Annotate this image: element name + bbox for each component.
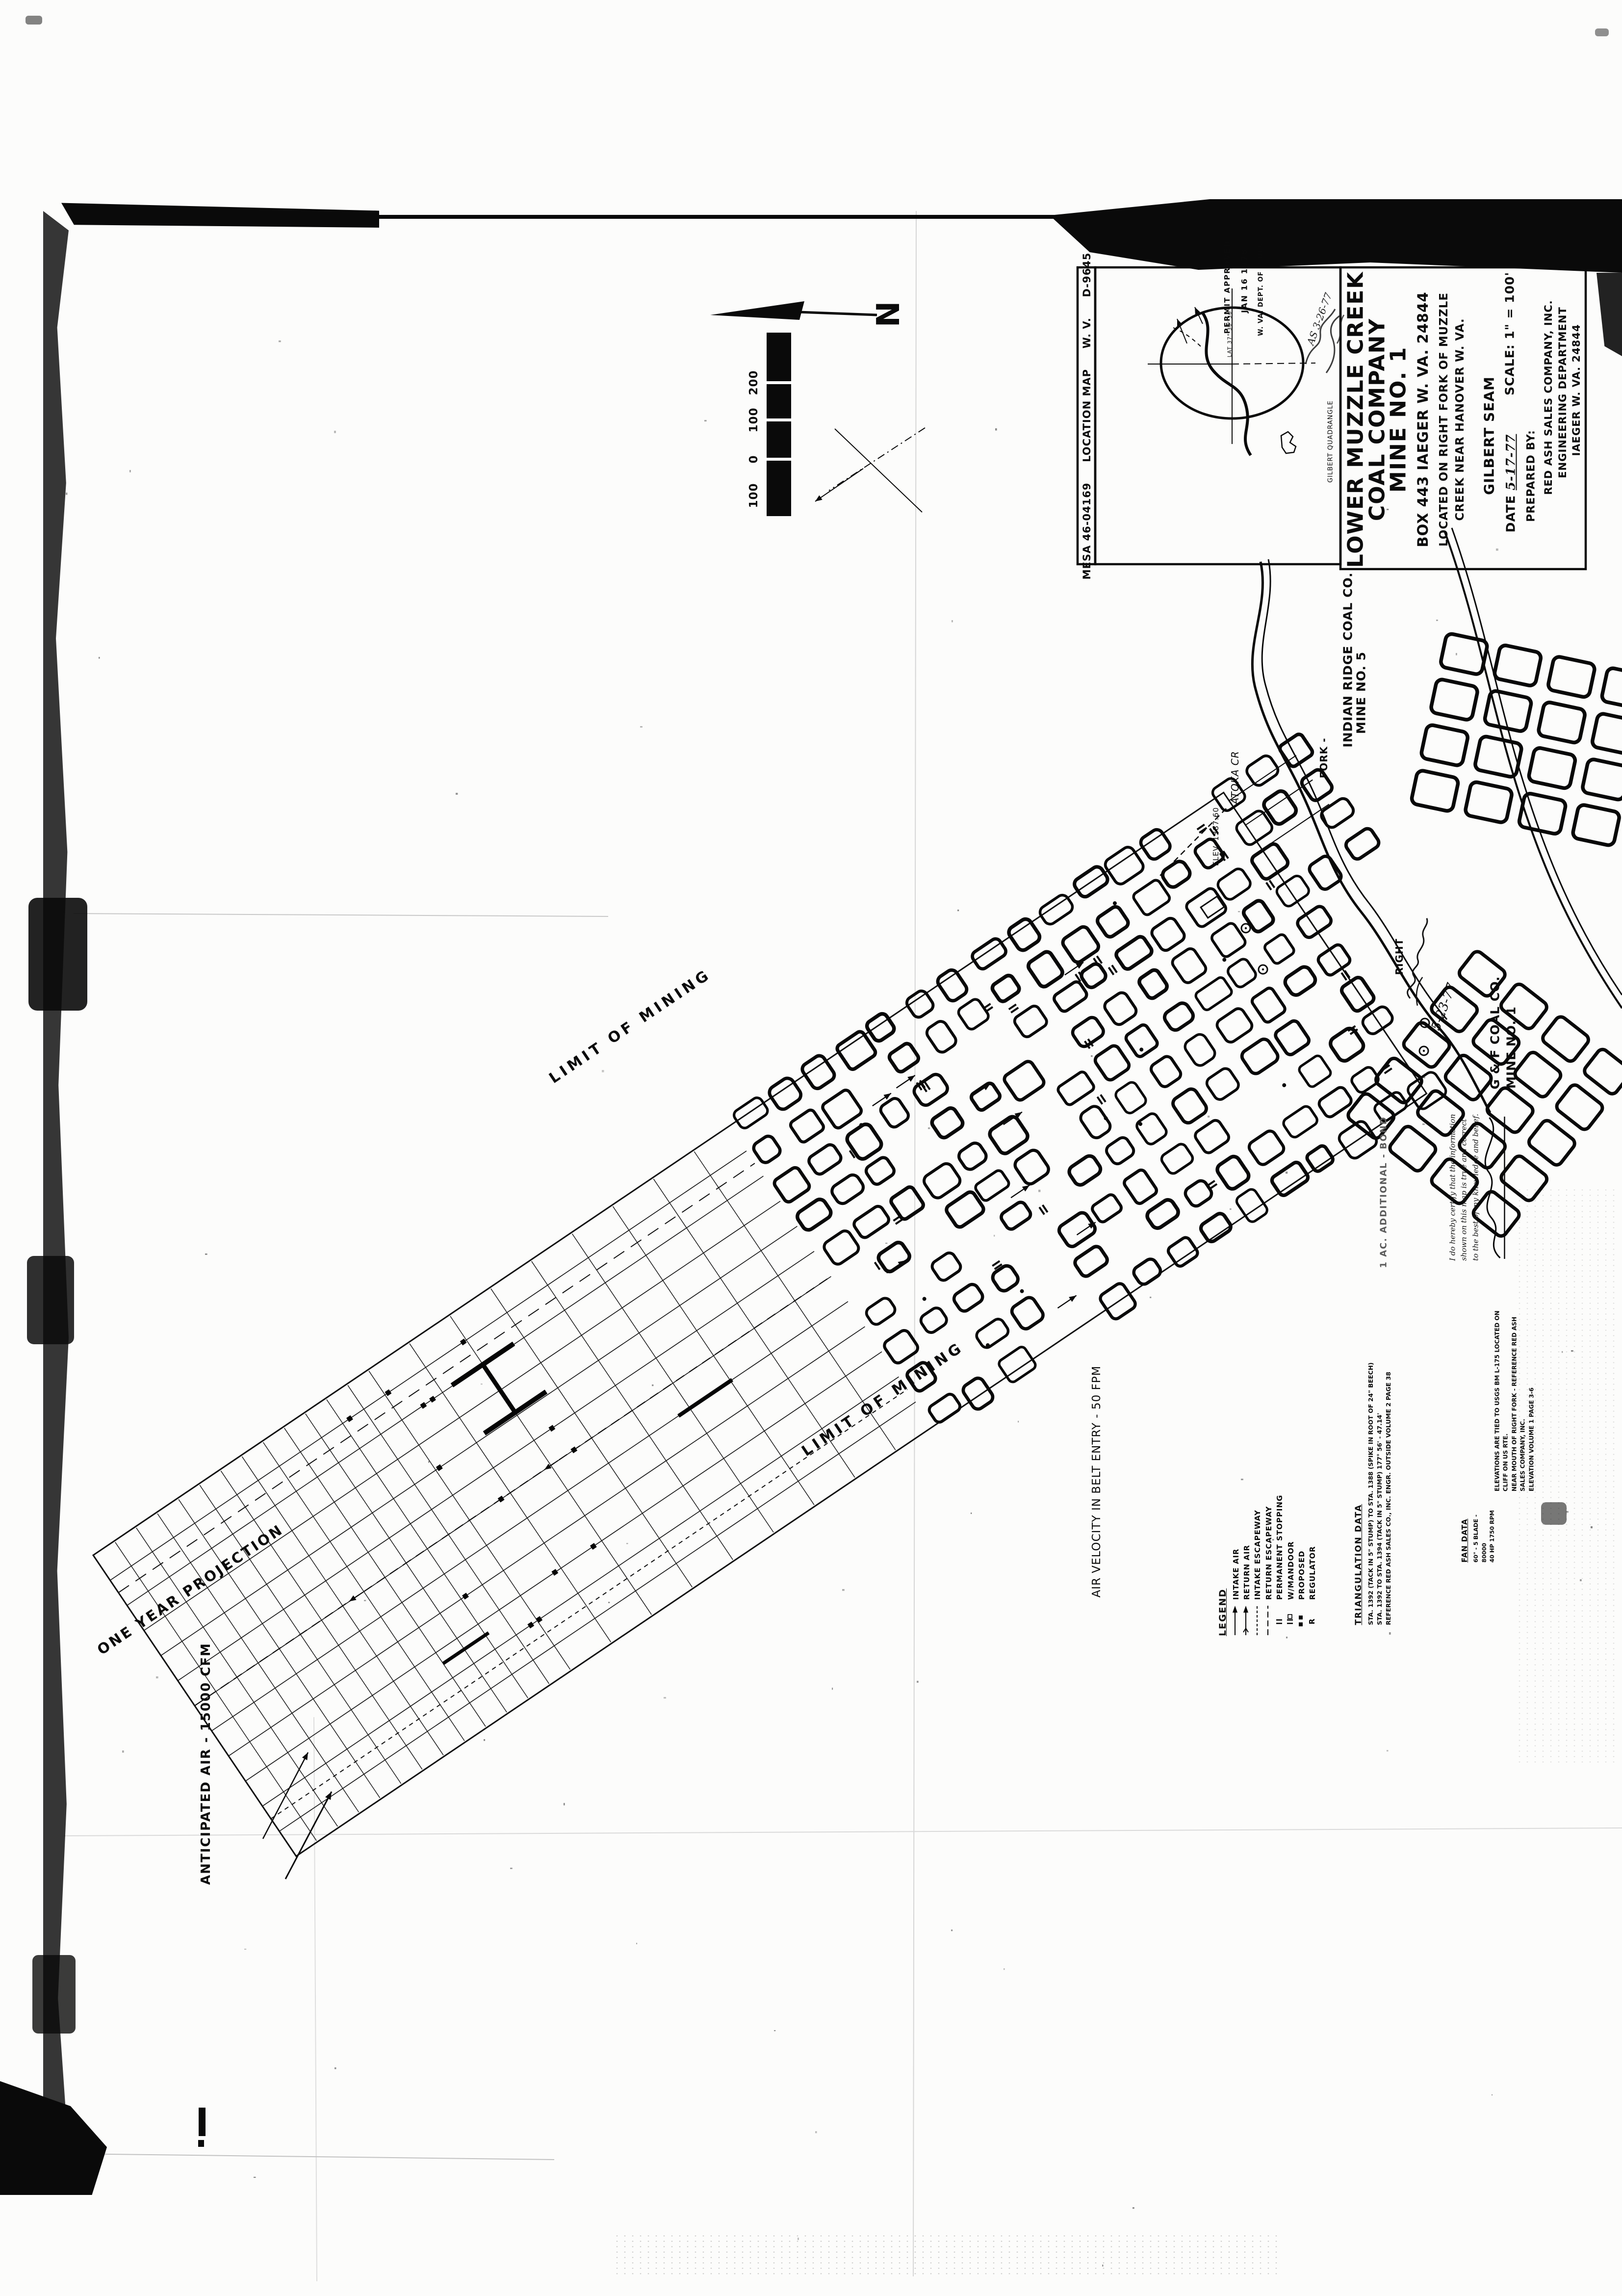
certification-line: to the best of my knowledge and belief. (1470, 1094, 1481, 1261)
triangulation-title: TRIANGULATION DATA (1354, 1358, 1364, 1625)
stamp-lat-note: LAT 37° 30' 30" (1227, 308, 1233, 358)
title-located-line1: LOCATED ON RIGHT FORK OF MUZZLE (1438, 292, 1450, 547)
indian-ridge-label-1: INDIAN RIDGE COAL CO. (1341, 572, 1355, 747)
state-label: W. V. (1081, 317, 1093, 348)
legend-item: INTAKE ESCAPEWAY (1253, 1450, 1263, 1636)
certification-signature-flourish (1481, 1114, 1507, 1261)
arrow-double-icon (1242, 1605, 1252, 1636)
legend-item: RETURN AIR (1242, 1450, 1252, 1636)
legend-rows: INTAKE AIRRETURN AIRINTAKE ESCAPEWAYRETU… (1231, 1450, 1318, 1636)
title-prepared-by: PREPARED BY: (1525, 430, 1538, 522)
legend-item: INTAKE AIR (1231, 1450, 1241, 1636)
certification-line: shown on this map is true and correct (1459, 1094, 1470, 1261)
indian-ridge-label-2: MINE NO. 5 (1354, 652, 1368, 734)
title-located-line2: CREEK NEAR HANOVER W. VA. (1454, 318, 1467, 521)
svg-text:R: R (1308, 1618, 1316, 1624)
title-preparer-line3: IAEGER W. VA. 24844 (1571, 324, 1582, 456)
scan-artifact (199, 2108, 206, 2136)
gf-coal-label-1: G & F COAL CO. (1488, 976, 1502, 1090)
north-label: N (871, 301, 907, 328)
legend-item-label: RETURN ESCAPEWAY (1265, 1506, 1273, 1600)
triangulation-line: REFERENCE RED ASH SALES CO., INC. ENGR. … (1384, 1358, 1393, 1625)
solid-squares-icon (1297, 1605, 1307, 1636)
legend-item-label: REGULATOR (1309, 1546, 1317, 1600)
portal-elevation-label: ELEV. 1387.60 (1211, 807, 1220, 866)
elevations-line: NEAR MOUTH OF RIGHT FORK - REFERENCE RED… (1510, 1295, 1527, 1491)
date-value: 5-17-77 (1504, 434, 1518, 491)
title-seam: GILBERT SEAM (1481, 376, 1497, 495)
fan-data-title: FAN DATA (1460, 1494, 1469, 1563)
triangulation-line: STA. 1392 (TACK IN 5" STUMP) TO STA. 138… (1366, 1358, 1375, 1625)
legend-item: PROPOSED (1297, 1450, 1307, 1636)
scale-bar-label-100a: 100 (747, 407, 760, 432)
triangulation-line: STA. 1392 TO STA. 1394 (TACK IN 5" STUMP… (1375, 1358, 1384, 1625)
scale-label: SCALE: (1503, 344, 1517, 395)
title-company-line3: MINE NO. 1 (1386, 346, 1411, 493)
title-scale: SCALE: 1" = 100' (1503, 272, 1517, 395)
scale-bar-label-0: 0 (747, 455, 760, 463)
legend-item: RREGULATOR (1308, 1450, 1318, 1636)
scan-artifact (378, 215, 1078, 219)
msha-number: MESA 46-04169 (1081, 482, 1093, 579)
dash-short-icon (1253, 1605, 1263, 1636)
creek-label-right: RIGHT (1393, 939, 1405, 975)
map-type-label: LOCATION MAP (1081, 369, 1093, 462)
dash-long-icon (1264, 1605, 1274, 1636)
stamp-line2: JAN 16 1978 (1240, 248, 1249, 313)
title-preparer-line2: ENGINEERING DEPARTMENT (1557, 307, 1569, 478)
quadrangle-label: GILBERT QUADRANGLE (1327, 400, 1335, 483)
legend-item-label: PROPOSED (1298, 1550, 1306, 1600)
scanned-mine-map-sheet: LOWER MUZZLE CREEK COAL COMPANY MINE NO.… (0, 0, 1622, 2296)
scale-bar-label-200: 200 (747, 370, 760, 395)
elevations-line: ELEVATION VOLUME 1 PAGE 3-6 (1527, 1295, 1536, 1491)
scan-artifact (26, 16, 42, 25)
legend: LEGEND INTAKE AIRRETURN AIRINTAKE ESCAPE… (1217, 1450, 1311, 1636)
scan-artifact (198, 2140, 204, 2147)
scan-artifact (1595, 28, 1609, 36)
legend-title: LEGEND (1217, 1450, 1228, 1636)
triangulation-data: TRIANGULATION DATA STA. 1392 (TACK IN 5"… (1354, 1358, 1432, 1625)
legend-item-label: RETURN AIR (1243, 1545, 1251, 1600)
fan-data-line: 60" - 5 BLADE - 80000 (1472, 1494, 1488, 1563)
stamp-line3: W. VA. DEPT. OF MINES (1258, 243, 1265, 336)
title-preparer-line1: RED ASH SALES COMPANY, INC. (1543, 300, 1554, 495)
legend-item: RETURN ESCAPEWAY (1264, 1450, 1274, 1636)
scan-artifact (27, 1256, 74, 1344)
double-bar-icon (1275, 1605, 1285, 1636)
anticipated-air-label: ANTICIPATED AIR - 15000 CFM (199, 1643, 213, 1885)
legend-item-label: INTAKE ESCAPEWAY (1254, 1510, 1262, 1600)
air-velocity-label: AIR VELOCITY IN BELT ENTRY - 50 FPM (1090, 1366, 1103, 1598)
letter-r-icon: R (1308, 1605, 1318, 1636)
elevations-note: ELEVATIONS ARE TIED TO USGS BM L-175 LOC… (1493, 1295, 1540, 1491)
scan-artifact (28, 898, 87, 1011)
gf-coal-label-2: MINE NO. 1 (1504, 1006, 1519, 1089)
additional-bond-note: 1 AC. ADDITIONAL - BOND (1379, 1116, 1389, 1268)
scan-noise (613, 2233, 1280, 2278)
legend-item: W/MANDOOR (1286, 1450, 1296, 1636)
scan-artifact (32, 1955, 76, 2034)
legend-item-label: W/MANDOOR (1287, 1541, 1295, 1600)
legend-item: PERMANENT STOPPING (1275, 1450, 1285, 1636)
index-strip-text: MESA 46-04169 LOCATION MAP W. V. D-9645 (1081, 253, 1093, 580)
drawing-number: D-9645 (1081, 253, 1093, 297)
date-label: DATE (1504, 495, 1518, 532)
certification-line: I do hereby certify that the information (1447, 1094, 1459, 1261)
elevations-line: ELEVATIONS ARE TIED TO USGS BM L-175 LOC… (1493, 1295, 1511, 1491)
scale-bar-label-100b: 100 (747, 483, 760, 508)
scale-value: 1" = 100' (1503, 272, 1517, 339)
arrow-single-icon (1231, 1605, 1241, 1636)
fan-data: FAN DATA 60" - 5 BLADE - 80000 40 HP 175… (1460, 1494, 1499, 1563)
legend-item-label: INTAKE AIR (1232, 1548, 1240, 1600)
creek-label-fork: FORK - (1318, 738, 1330, 779)
title-address: BOX 443 IAEGER W. VA. 24844 (1415, 291, 1431, 547)
scan-artifact (1541, 1502, 1567, 1525)
creek-label-atoka: ATOKA CR (1229, 751, 1241, 804)
double-bar-door-icon (1286, 1605, 1296, 1636)
fan-data-line: 40 HP 1750 RPM (1488, 1494, 1496, 1563)
title-date: DATE 5-17-77 (1504, 434, 1518, 533)
legend-item-label: PERMANENT STOPPING (1276, 1495, 1284, 1600)
handwritten-certification: I do hereby certify that the information… (1447, 1094, 1543, 1261)
